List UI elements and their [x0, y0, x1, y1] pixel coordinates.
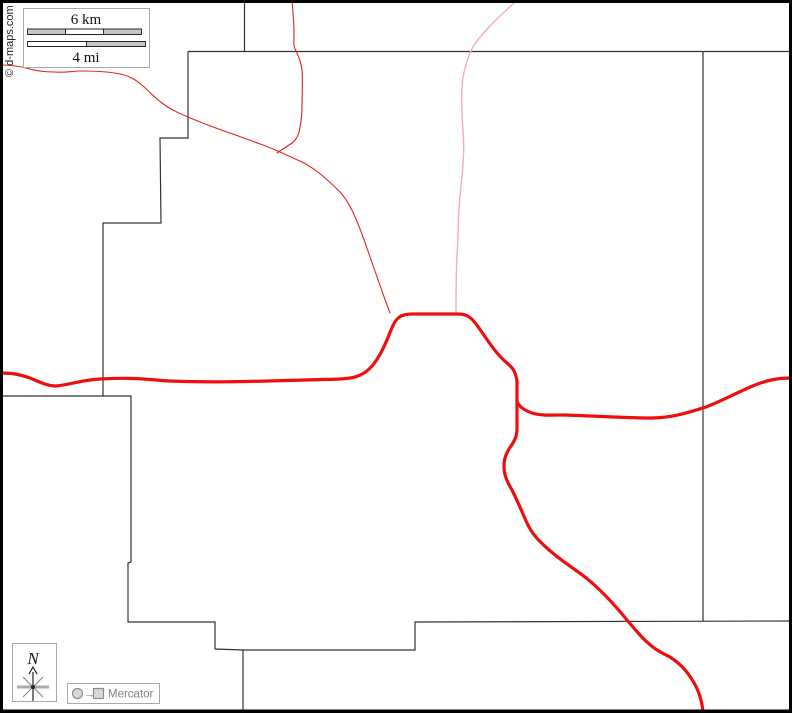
compass-north-label: N [26, 649, 40, 668]
projected-square-icon [94, 689, 104, 699]
scale-km-seg-2 [66, 29, 104, 35]
scale-km-bar [28, 29, 142, 35]
compass-center-dot [31, 685, 35, 689]
scale-mi-label: 4 mi [72, 50, 99, 66]
scale-mi-seg-2 [87, 42, 146, 47]
scale-km-seg-1 [28, 29, 66, 35]
projection-label: Mercator [108, 689, 154, 701]
scale-km-label: 6 km [71, 12, 102, 28]
scale-mi-bar [28, 42, 146, 47]
scale-mi-seg-1 [28, 42, 87, 47]
copyright-text: © d-maps.com [4, 5, 16, 77]
projection-legend: → Mercator [68, 684, 160, 704]
scale-km-seg-3 [104, 29, 142, 35]
scale-bar: 6 km 4 mi [24, 9, 150, 68]
globe-icon [73, 689, 83, 699]
map-canvas: 6 km 4 mi © d-maps.com N → Merc [0, 0, 792, 713]
map-background [0, 0, 792, 713]
compass: N [13, 644, 57, 702]
